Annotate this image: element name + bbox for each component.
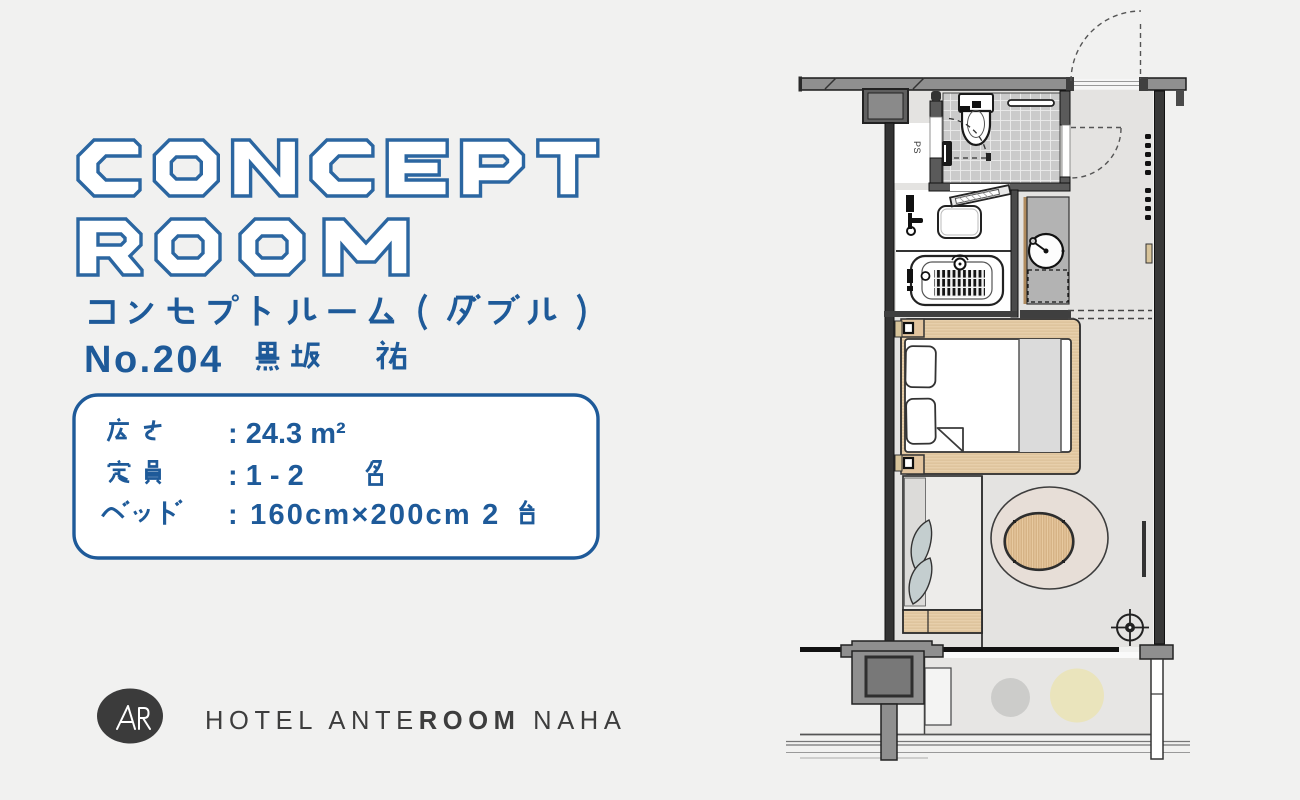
svg-text:: 24.3 m²: : 24.3 m² [228, 418, 346, 450]
svg-text:HOTEL ANTEROOM NAHA: HOTEL ANTEROOM NAHA [205, 707, 626, 735]
svg-text:: 160cm×200cm 2: : 160cm×200cm 2 [228, 499, 500, 531]
svg-text:PS: PS [912, 141, 922, 154]
svg-text:: 1 - 2: : 1 - 2 [228, 460, 304, 492]
svg-text:No.204: No.204 [84, 339, 224, 381]
